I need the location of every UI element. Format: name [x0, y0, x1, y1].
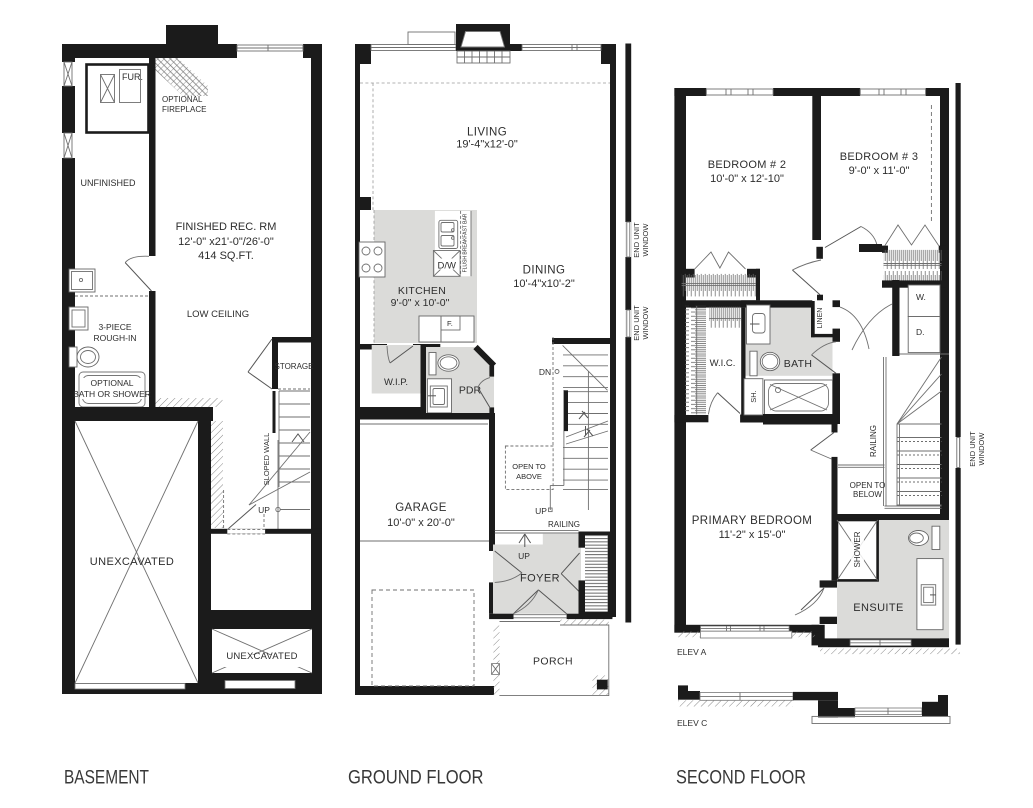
- svg-text:10'-0" x 20'-0": 10'-0" x 20'-0": [387, 517, 455, 529]
- svg-text:D.: D.: [916, 327, 925, 337]
- svg-text:RAILING: RAILING: [548, 520, 580, 529]
- svg-text:10'-0" x 12'-10": 10'-0" x 12'-10": [710, 173, 784, 185]
- svg-text:OPTIONAL: OPTIONAL: [91, 378, 134, 388]
- svg-text:DINING: DINING: [523, 265, 566, 277]
- svg-text:BEDROOM # 2: BEDROOM # 2: [708, 159, 787, 171]
- svg-text:W.: W.: [916, 292, 926, 302]
- svg-text:OPEN TO: OPEN TO: [850, 481, 886, 490]
- svg-text:BELOW: BELOW: [853, 490, 882, 499]
- svg-text:3-PIECE: 3-PIECE: [98, 322, 131, 332]
- svg-text:UNFINISHED: UNFINISHED: [80, 178, 136, 188]
- svg-text:F.: F.: [447, 319, 453, 328]
- svg-text:END UNITWINDOW: END UNITWINDOW: [968, 431, 986, 467]
- svg-text:KITCHEN: KITCHEN: [398, 285, 446, 297]
- svg-text:RAILING: RAILING: [869, 425, 878, 457]
- svg-text:FUR.: FUR.: [122, 72, 143, 82]
- svg-text:ABOVE: ABOVE: [516, 472, 542, 481]
- svg-text:BATH OR SHOWER: BATH OR SHOWER: [73, 389, 151, 399]
- svg-text:ROUGH-IN: ROUGH-IN: [94, 333, 137, 343]
- svg-text:STORAGE: STORAGE: [275, 362, 314, 371]
- svg-text:GROUND FLOOR: GROUND FLOOR: [348, 768, 484, 789]
- svg-text:FIREPLACE: FIREPLACE: [162, 105, 206, 114]
- svg-text:UNEXCAVATED: UNEXCAVATED: [90, 556, 174, 568]
- svg-text:LINEN: LINEN: [817, 308, 824, 329]
- svg-text:LOW CEILING: LOW CEILING: [187, 309, 249, 320]
- svg-text:OPEN TO: OPEN TO: [512, 462, 546, 471]
- svg-text:DN: DN: [539, 367, 551, 377]
- svg-text:UP: UP: [258, 505, 270, 515]
- svg-text:FINISHED REC. RM: FINISHED REC. RM: [176, 221, 277, 233]
- svg-text:UP: UP: [518, 551, 530, 561]
- svg-text:D/W: D/W: [437, 261, 456, 272]
- svg-text:19'-4"x12'-0": 19'-4"x12'-0": [456, 139, 518, 151]
- svg-text:UNEXCAVATED: UNEXCAVATED: [226, 651, 297, 662]
- svg-text:10'-4"x10'-2": 10'-4"x10'-2": [513, 278, 575, 290]
- svg-text:END UNITWINDOW: END UNITWINDOW: [632, 305, 650, 341]
- svg-text:9'-0" x 10'-0": 9'-0" x 10'-0": [391, 297, 450, 309]
- svg-text:END UNITWINDOW: END UNITWINDOW: [632, 222, 650, 258]
- svg-text:UP: UP: [535, 506, 547, 516]
- svg-text:GARAGE: GARAGE: [395, 502, 447, 514]
- svg-text:SH.: SH.: [749, 390, 758, 403]
- svg-text:12'-0" x21'-0"/26'-0": 12'-0" x21'-0"/26'-0": [178, 236, 274, 248]
- svg-text:FLUSH BREAKFAST BAR: FLUSH BREAKFAST BAR: [463, 213, 469, 272]
- svg-text:SECOND FLOOR: SECOND FLOOR: [676, 768, 806, 789]
- svg-text:LIVING: LIVING: [467, 127, 507, 139]
- svg-text:BATH: BATH: [784, 358, 812, 370]
- svg-text:PRIMARY BEDROOM: PRIMARY BEDROOM: [692, 515, 813, 527]
- svg-text:9'-0" x 11'-0": 9'-0" x 11'-0": [849, 165, 910, 177]
- svg-text:BEDROOM # 3: BEDROOM # 3: [840, 151, 919, 163]
- svg-text:11'-2" x 15'-0": 11'-2" x 15'-0": [719, 529, 786, 541]
- svg-text:414 SQ.FT.: 414 SQ.FT.: [198, 250, 254, 262]
- svg-text:BASEMENT: BASEMENT: [64, 768, 149, 789]
- svg-text:ELEV C: ELEV C: [677, 718, 707, 728]
- svg-text:ELEV A: ELEV A: [677, 647, 707, 657]
- svg-text:PORCH: PORCH: [533, 656, 573, 668]
- svg-text:W.I.C.: W.I.C.: [710, 358, 736, 369]
- svg-text:ENSUITE: ENSUITE: [853, 602, 903, 614]
- svg-text:SLOPED WALL: SLOPED WALL: [262, 433, 271, 486]
- svg-text:W.I.P.: W.I.P.: [384, 377, 408, 388]
- svg-text:FOYER: FOYER: [520, 573, 560, 585]
- svg-text:OPTIONAL: OPTIONAL: [162, 95, 203, 104]
- svg-text:SHOWER: SHOWER: [853, 531, 862, 567]
